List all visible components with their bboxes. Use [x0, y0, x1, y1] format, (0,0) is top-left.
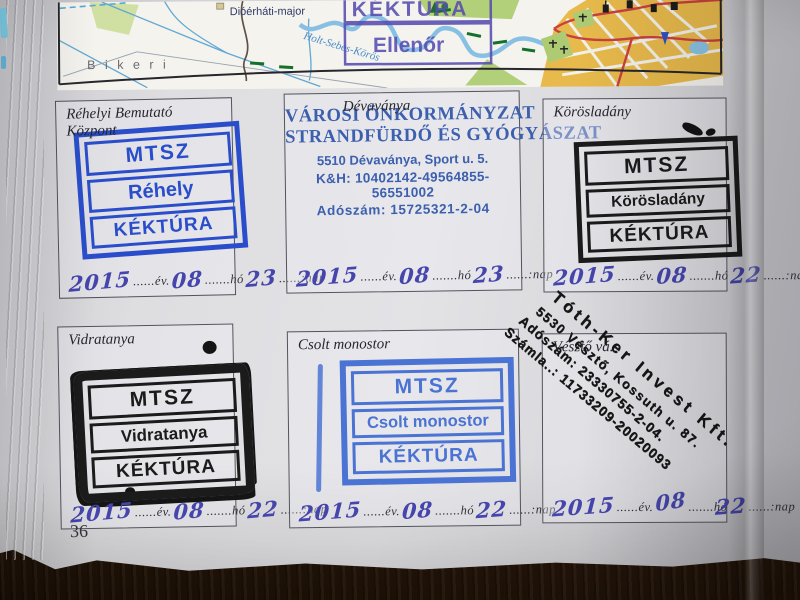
handwritten-day: 22 — [715, 492, 748, 519]
handwritten-month: 08 — [655, 486, 686, 516]
date-line: 2015 ......év. 08 .......hó 22 ......:na… — [550, 494, 723, 518]
date-line: 2015 ......év. 08 .......hó 22 ......:na… — [551, 263, 723, 287]
page-number: 36 — [70, 521, 88, 542]
stamp-row-kektura: KÉKTÚRA — [587, 216, 732, 254]
handwritten-year: 2015 — [296, 261, 360, 291]
control-stamp-kektura: KÉKTÚRA — [352, 0, 469, 21]
date-label-nap: ......:nap — [749, 499, 796, 516]
date-line: 2015 ......év. 08 .......hó 22 ......:na… — [68, 498, 232, 524]
stamp-row-name: Vidratanya — [90, 416, 239, 453]
date-label-ho: .......hó — [435, 503, 474, 520]
org-line2: STRANDFÜRDŐ ÉS GYÓGYÁSZAT — [285, 124, 519, 148]
mtsz-stamp-rehely: MTSZ Réhely KÉKTÚRA — [73, 121, 248, 260]
map-strip: Dióérháti-major B i k e r i Holt-Sebes-K… — [57, 0, 724, 90]
handwritten-day: 22 — [475, 496, 508, 524]
box-title: Csolt monostor — [298, 335, 510, 354]
box-title: Dévaványa — [343, 98, 411, 116]
stamp-row-kektura: KÉKTÚRA — [352, 439, 505, 474]
box-title: Vidratanya — [68, 330, 224, 350]
date-label-ho: .......hó — [205, 272, 244, 290]
date-label-ev: ......év. — [363, 504, 400, 521]
stamp-row-mtsz: MTSZ — [584, 146, 729, 186]
stamp-box-vidratanya: Vidratanya MTSZ Vidratanya KÉKTÚRA 2015 … — [57, 323, 237, 529]
date-label-ev: ......év. — [135, 505, 172, 523]
handwritten-month: 08 — [173, 497, 205, 525]
stamp-row-name: Körösladány — [586, 184, 731, 217]
date-line: 2015 ......év. 08 .......hó 23 ......:na… — [66, 266, 231, 292]
map-town — [540, 0, 724, 87]
date-label-ev: ......év. — [361, 269, 398, 287]
date-label-ev: ......év. — [618, 269, 655, 286]
box-title: Réhelyi Bemutató Központ — [66, 103, 224, 140]
stamp-box-rehely: Réhelyi Bemutató Központ MTSZ Réhely KÉK… — [55, 97, 236, 299]
stamp-row-name: Csolt monostor — [352, 406, 505, 438]
handwritten-year: 2015 — [553, 261, 617, 291]
date-label-nap: ......:nap — [764, 268, 800, 285]
handwritten-month: 08 — [656, 262, 689, 290]
org-address: 5510 Dévaványa, Sport u. 5. — [285, 150, 519, 168]
handwritten-day: 22 — [730, 261, 763, 289]
handwritten-day: 23 — [245, 264, 277, 292]
handwritten-day: 22 — [247, 496, 279, 524]
mtsz-stamp-vidratanya: MTSZ Vidratanya KÉKTÚRA — [73, 363, 256, 503]
box-title: Körösladány — [554, 104, 718, 122]
org-tax-number: Adószám: 15725321-2-04 — [286, 200, 520, 218]
handwritten-month: 08 — [399, 261, 432, 289]
mtsz-stamp-csolt: MTSZ Csolt monostor KÉKTÚRA — [340, 357, 517, 485]
page-content: Dióérháti-major B i k e r i Holt-Sebes-K… — [0, 0, 800, 600]
date-line: 2015 ......év. 08 .......hó 23 ......:na… — [294, 261, 518, 287]
stamp-box-devavanya: Dévaványa VÁROSI ÖNKORMÁNYZAT STRANDFÜRD… — [284, 90, 523, 293]
stamp-row-name: Réhely — [87, 170, 235, 214]
map-label-bikeri: B i k e r i — [87, 58, 169, 73]
blue-ink-streak — [316, 364, 323, 492]
stamp-row-mtsz: MTSZ — [351, 368, 504, 405]
handwritten-month: 08 — [401, 496, 434, 524]
handwritten-month: 08 — [171, 266, 203, 294]
date-line: 2015 ......év. 08 .......hó 22 ......:na… — [297, 497, 517, 523]
handwritten-year: 2015 — [298, 496, 362, 526]
handwritten-year: 2015 — [68, 266, 131, 297]
date-label-ho: .......hó — [432, 268, 471, 286]
ink-smudge — [681, 121, 705, 138]
farm-building — [217, 3, 224, 9]
municipal-text-stamp: VÁROSI ÖNKORMÁNYZAT STRANDFÜRDŐ ÉS GYÓGY… — [285, 103, 521, 218]
handwritten-day: 23 — [473, 260, 506, 288]
date-label-ev: ......év. — [133, 274, 170, 292]
stamp-row-mtsz: MTSZ — [88, 378, 238, 420]
stamp-row-kektura: KÉKTÚRA — [90, 207, 238, 249]
handwritten-year: 2015 — [552, 492, 616, 522]
date-label-ev: ......év. — [617, 500, 654, 517]
mtsz-stamp-korosladany: MTSZ Körösladány KÉKTÚRA — [574, 136, 743, 264]
stamp-box-csolt-monostor: Csolt monostor MTSZ Csolt monostor KÉKTÚ… — [287, 329, 521, 529]
trail-map: Dióérháti-major B i k e r i Holt-Sebes-K… — [57, 0, 724, 90]
date-label-ho: .......hó — [690, 269, 729, 286]
stamp-row-kektura: KÉKTÚRA — [91, 449, 240, 488]
control-stamp-ellenor: Ellenőr — [373, 34, 444, 57]
org-bank-account: K&H: 10402142-49564855-56551002 — [286, 168, 520, 201]
map-label-major: Dióérháti-major — [230, 6, 306, 19]
date-label-ho: .......hó — [207, 503, 246, 521]
stamp-box-korosladany: Körösladány MTSZ Körösladány KÉKTÚRA 201… — [542, 98, 727, 293]
photo-stamp-booklet-page: Dióérháti-major B i k e r i Holt-Sebes-K… — [0, 0, 800, 600]
